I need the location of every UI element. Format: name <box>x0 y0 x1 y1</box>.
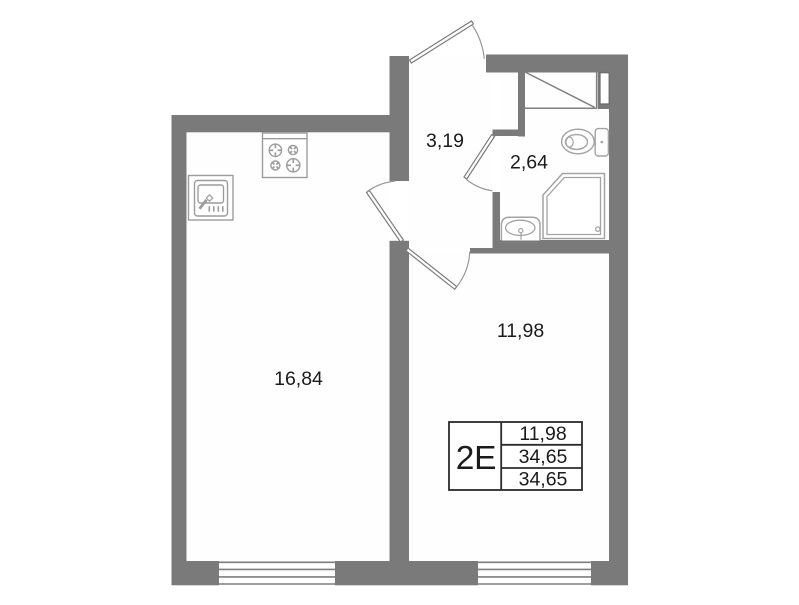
svg-text:34,65: 34,65 <box>519 469 568 491</box>
svg-text:11,98: 11,98 <box>519 423 566 445</box>
svg-text:3,19: 3,19 <box>426 130 464 152</box>
svg-text:2,64: 2,64 <box>510 152 548 174</box>
svg-text:2E: 2E <box>456 440 496 477</box>
svg-text:34,65: 34,65 <box>519 446 568 468</box>
svg-text:11,98: 11,98 <box>497 320 544 342</box>
svg-text:16,84: 16,84 <box>274 368 323 390</box>
